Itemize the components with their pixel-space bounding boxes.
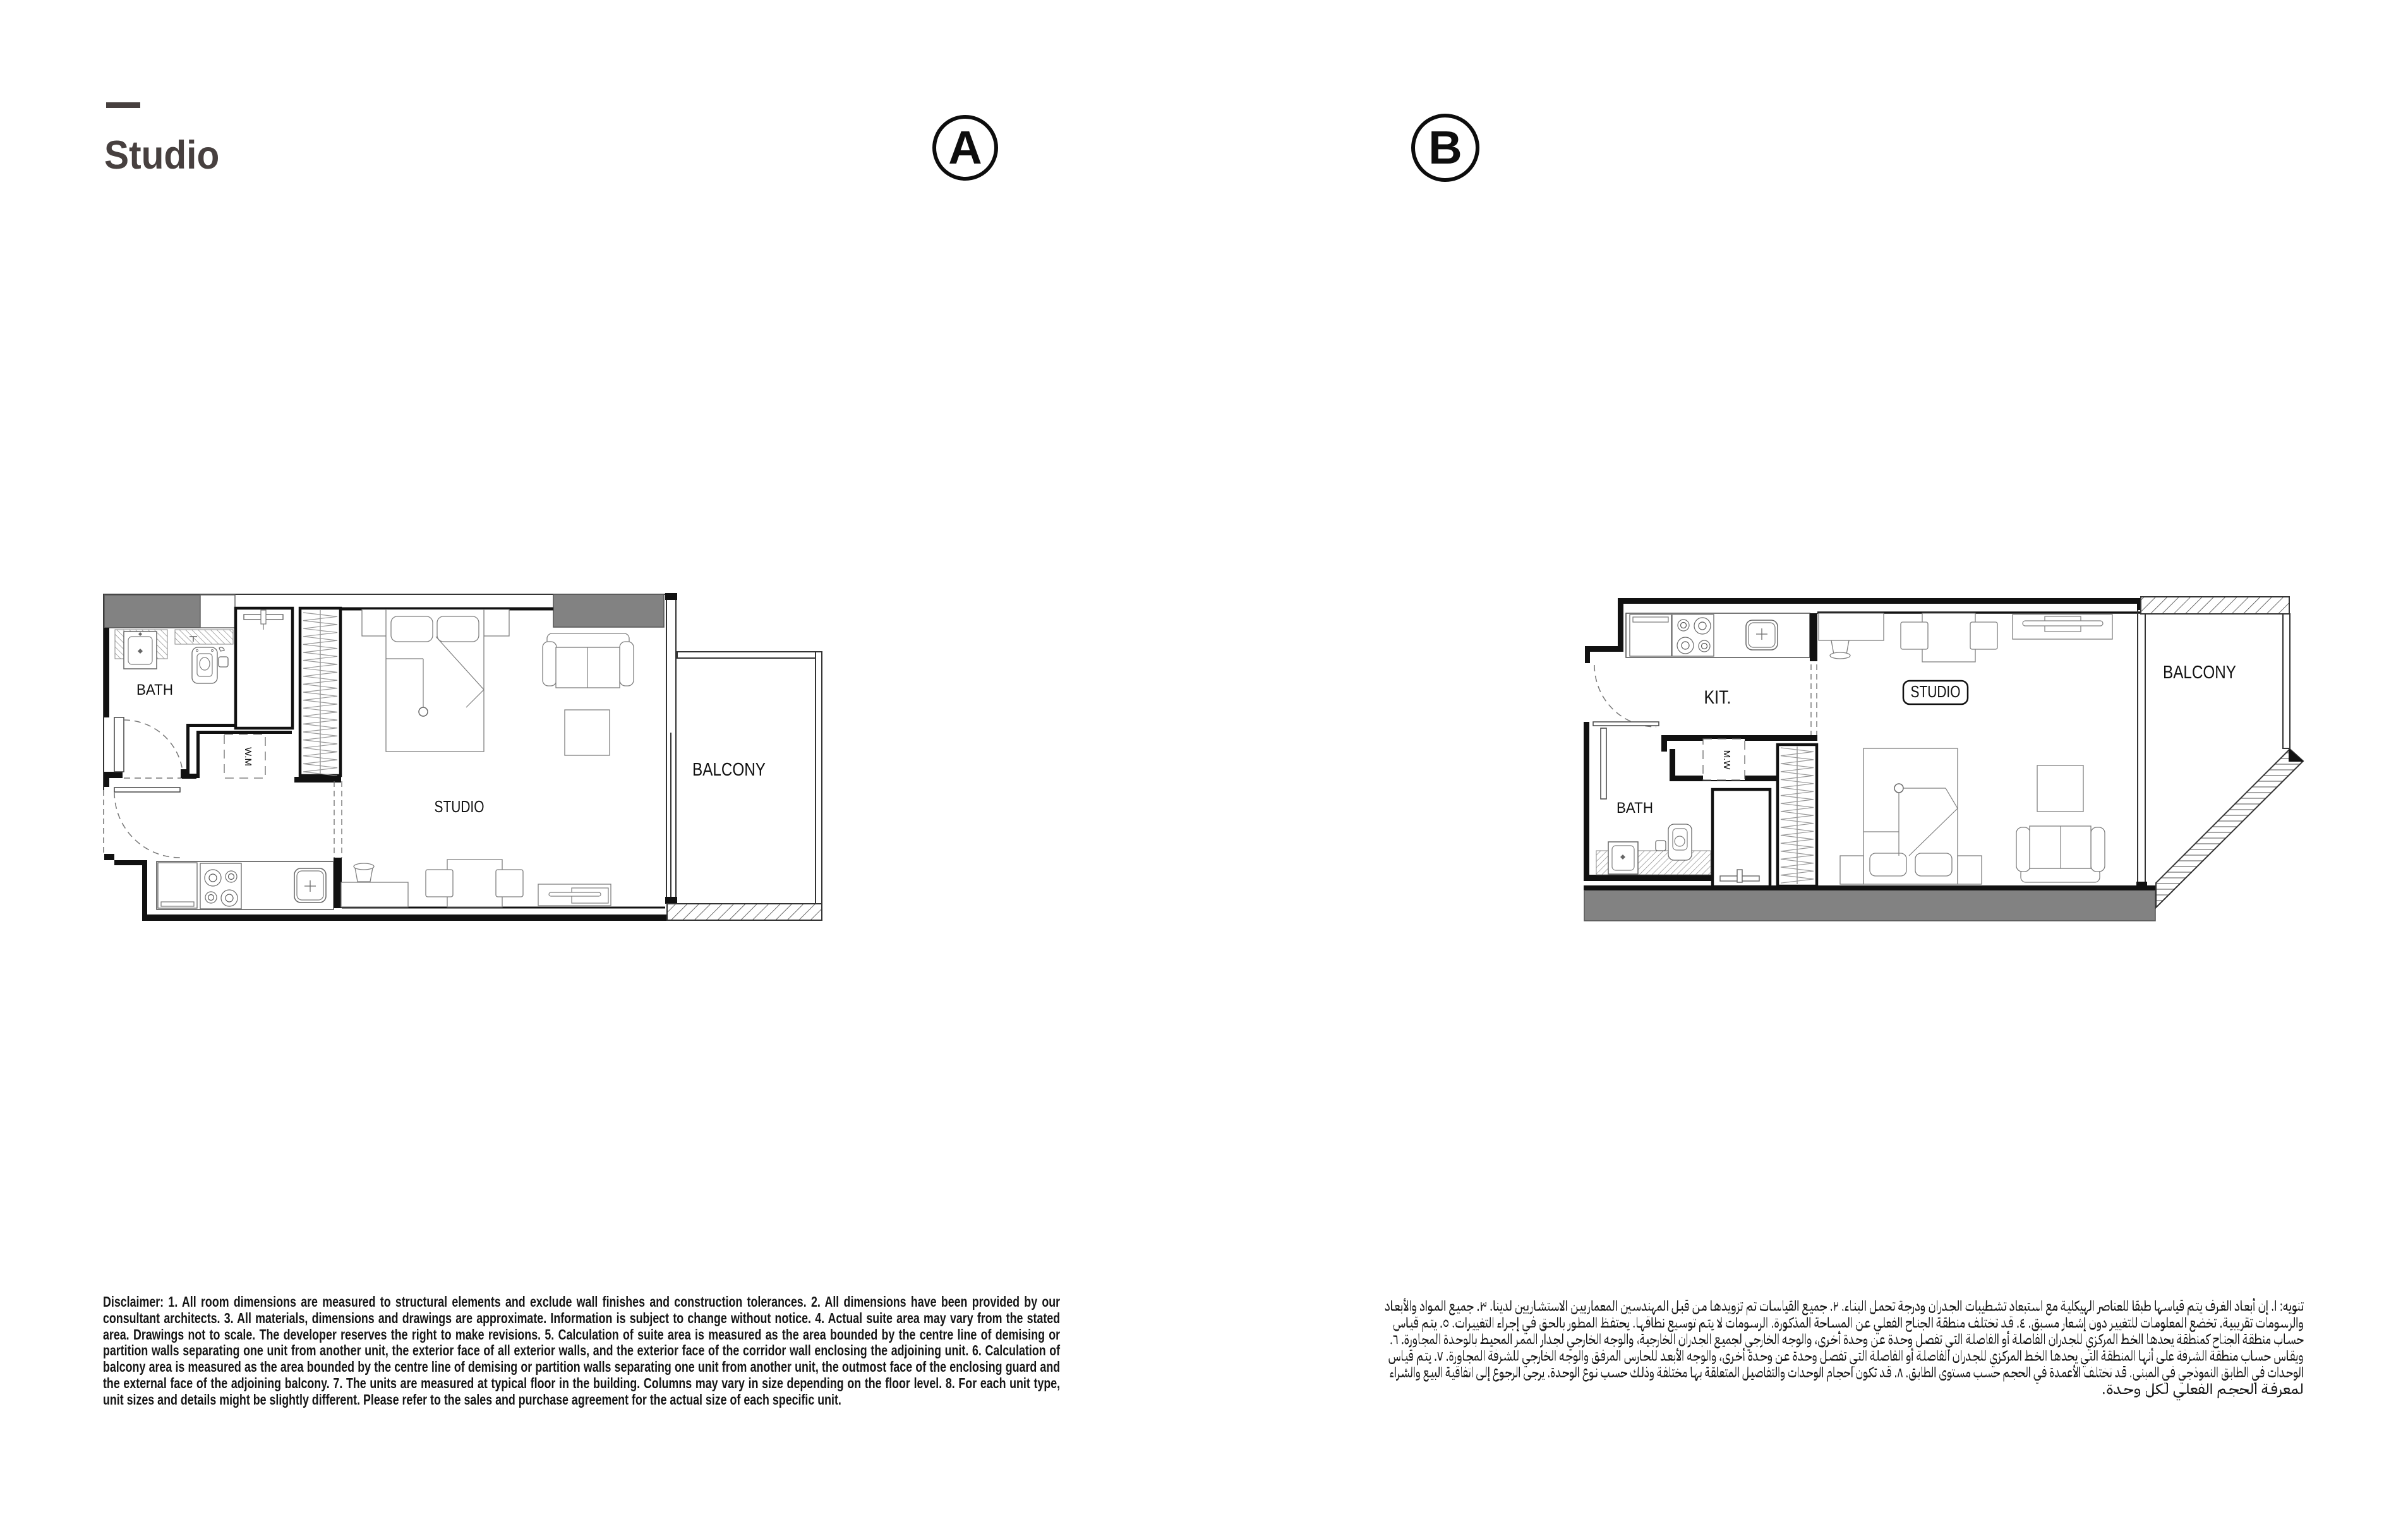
svg-text:W.M: W.M bbox=[243, 747, 253, 766]
svg-text:STUDIO: STUDIO bbox=[435, 797, 485, 816]
svg-text:BATH: BATH bbox=[136, 681, 173, 699]
svg-text:BATH: BATH bbox=[1616, 800, 1653, 817]
svg-text:M.W: M.W bbox=[1721, 750, 1732, 770]
svg-text:STUDIO: STUDIO bbox=[1911, 682, 1961, 701]
svg-text:BALCONY: BALCONY bbox=[692, 760, 766, 780]
svg-text:KIT.: KIT. bbox=[1704, 687, 1731, 708]
svg-text:BALCONY: BALCONY bbox=[2163, 663, 2236, 683]
